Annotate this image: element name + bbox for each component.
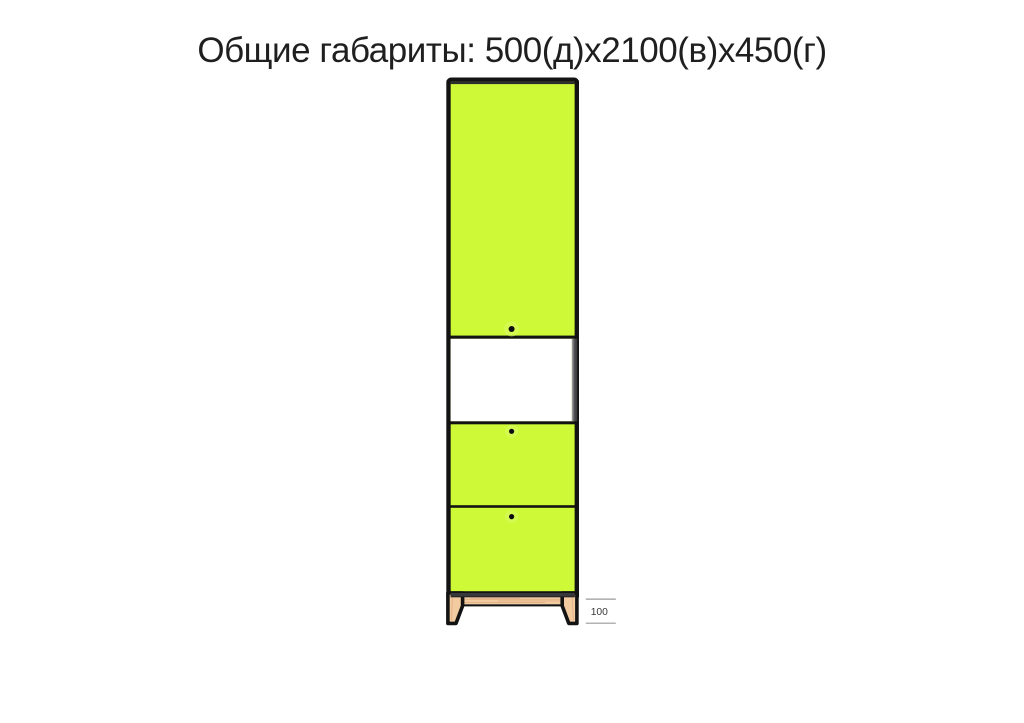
svg-text:100: 100 [591,607,608,618]
